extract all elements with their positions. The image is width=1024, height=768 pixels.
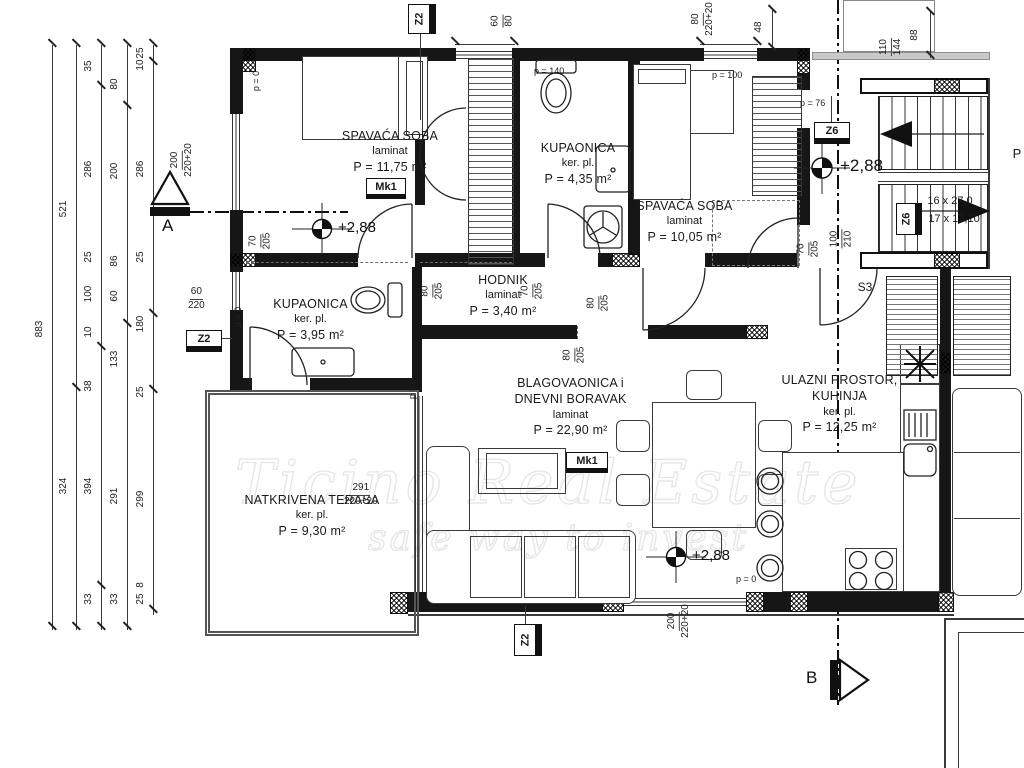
dim-door: 100210	[828, 230, 854, 249]
dim-a: 80	[419, 284, 433, 297]
wall	[256, 253, 358, 267]
sofa-line	[954, 518, 1020, 519]
chain-dim: 60	[110, 279, 120, 313]
dim-a: 100	[828, 230, 842, 249]
wall	[808, 592, 938, 612]
room-area: P = 12,25 m²	[752, 419, 927, 435]
marker-mk1: Mk1	[366, 178, 406, 195]
toilet-bowl-inner	[546, 79, 566, 107]
marker-z2-top: Z2	[408, 4, 430, 34]
level-text: +2,88	[338, 219, 376, 236]
dashed-line	[246, 262, 408, 263]
marker-text: Z6	[900, 213, 912, 226]
dim-line	[700, 44, 758, 45]
dim-line	[455, 44, 515, 45]
wall	[940, 269, 951, 593]
dim-a: 60	[190, 286, 203, 300]
chain-dim: 883	[35, 312, 45, 346]
dim-line	[772, 10, 773, 48]
toilet-bowl	[541, 73, 571, 113]
chain-dim: 86	[110, 244, 120, 278]
wall-pier	[746, 325, 768, 339]
stairs-spec-1: 16 x 27,0	[908, 194, 992, 208]
door-arc	[548, 204, 600, 258]
marker-text: Mk1	[375, 181, 396, 193]
terrace-edge	[958, 632, 959, 768]
drum-spoke	[590, 227, 603, 235]
window	[232, 114, 240, 210]
dim-b: 205	[809, 241, 822, 258]
dim-line	[930, 12, 931, 58]
room-label-living: BLAGOVAONICA i DNEVNI BORAVAK laminat P …	[478, 375, 663, 438]
stairs-spec-2: 17 x 17,10	[912, 212, 996, 226]
room-label-kitchen: ULAZNI PROSTOR, KUHINJA ker. pl. P = 12,…	[752, 372, 927, 435]
chain-dim: 394	[84, 469, 94, 503]
section-a-label: A	[162, 216, 173, 236]
dim-opening: 80205	[561, 347, 587, 364]
dim-line	[101, 45, 102, 630]
marker-text: Mk1	[576, 455, 597, 467]
room-name: ULAZNI PROSTOR,	[752, 372, 927, 388]
dim-b: 80	[503, 15, 516, 26]
d: 80	[585, 296, 599, 309]
room-label-bath1: KUPAONICA ker. pl. P = 4,35 m²	[520, 140, 636, 187]
section-b-triangle	[840, 660, 868, 700]
room-name: BLAGOVAONICA i	[478, 375, 663, 391]
chain-dim: 35	[84, 49, 94, 83]
window	[704, 51, 757, 59]
terrace-edge	[944, 618, 946, 768]
room-area: P = 9,30 m²	[222, 523, 402, 539]
p-level: p = 0	[407, 379, 417, 399]
dim-window: 291220+20	[344, 482, 378, 508]
room-area: P = 22,90 m²	[478, 422, 663, 438]
dim-b: 205	[599, 295, 612, 312]
marker-leader	[525, 606, 526, 624]
floor-plan: 883 521 324 35 286 25 100 10 38 394 33 8…	[0, 0, 1024, 768]
dim-a: 70	[247, 234, 261, 247]
bar-stool-inner	[762, 516, 779, 533]
dim-line	[52, 45, 53, 630]
marker-mk1: Mk1	[566, 452, 608, 469]
chain-dim: 324	[59, 469, 69, 503]
opening-dashed	[577, 326, 578, 339]
dim-door: 70205	[795, 241, 821, 258]
dim-door: 70205	[519, 283, 545, 300]
room-area: P = 11,75 m²	[295, 159, 485, 175]
dim-a: 110	[878, 38, 892, 56]
chain-dim: 10	[136, 48, 146, 82]
marker-bar	[430, 4, 436, 34]
room-floor: ker. pl.	[752, 405, 927, 419]
bar-stool	[757, 555, 783, 581]
p-level: p = 140	[534, 66, 564, 76]
room-area: P = 10,05 m²	[612, 229, 757, 245]
dim-window: 80220+20	[690, 2, 716, 36]
dim-window: 60220	[188, 286, 205, 312]
wall	[512, 48, 704, 61]
room-name: SPAVAĆA SOBA	[612, 198, 757, 214]
marker-bar	[566, 469, 608, 473]
p-level: p = 100	[712, 70, 742, 80]
label-p-cut: P	[1010, 146, 1024, 163]
chair	[686, 370, 722, 400]
sofa-right	[952, 388, 1022, 596]
room-floor: laminat	[478, 408, 663, 422]
section-a-bar	[150, 207, 190, 216]
p-level: p = 76	[800, 98, 825, 108]
dim-a: 70	[519, 284, 533, 297]
marker-leader	[420, 34, 421, 120]
room-floor: ker. pl.	[222, 508, 402, 522]
wall	[860, 78, 988, 94]
dim-a: 200	[666, 612, 680, 631]
marker-text: Z6	[826, 125, 839, 137]
section-b-label: B	[806, 668, 817, 688]
terrace-edge	[958, 632, 1024, 633]
chain-dim: 133	[110, 342, 120, 376]
dim-b: 220+20	[344, 496, 378, 509]
section-b-bar	[830, 660, 838, 700]
room-name: DNEVNI BORAVAK	[478, 391, 663, 407]
wardrobe	[886, 276, 938, 376]
section-a-line	[190, 211, 348, 213]
room-label-bath2: KUPAONICA ker. pl. P = 3,95 m²	[248, 296, 373, 343]
room-name: SPAVAĆA SOBA	[295, 128, 485, 144]
room-name: KUHINJA	[752, 388, 927, 404]
room-name: KUPAONICA	[520, 140, 636, 156]
dim-door: 80205	[585, 295, 611, 312]
door-arc	[820, 268, 877, 325]
wall-pier	[938, 592, 954, 612]
chain-dim: 200	[110, 154, 120, 188]
wall	[230, 48, 243, 114]
chain-dim: 299	[136, 482, 146, 516]
chain-dim: 25	[136, 582, 146, 616]
dim-b: 144	[891, 39, 904, 56]
marker-z6: Z6	[814, 122, 850, 139]
room-floor: ker. pl.	[248, 312, 373, 326]
marker-z2-left: Z2	[186, 330, 222, 347]
chain-dim: 180	[136, 307, 146, 341]
chain-dim: 286	[84, 152, 94, 186]
room-area: P = 3,40 m²	[448, 303, 558, 319]
dim-b: 205	[261, 233, 274, 250]
marker-bar	[186, 347, 222, 352]
room-floor: laminat	[612, 214, 757, 228]
door-arc	[643, 268, 705, 330]
chain-dim: 80	[110, 67, 120, 101]
washbasin-drain	[321, 360, 325, 364]
room-label-bedroom1: SPAVAĆA SOBA laminat P = 11,75 m²	[295, 128, 485, 175]
dim-a: 80	[561, 348, 575, 361]
marker-z2-bottom: Z2	[514, 624, 536, 656]
wall-pier	[790, 592, 808, 612]
toilet-tank	[388, 283, 402, 317]
bed-line	[398, 57, 399, 139]
dim-a: 200	[169, 151, 183, 170]
room-label-bedroom2: SPAVAĆA SOBA laminat P = 10,05 m²	[612, 198, 757, 245]
marker-bar	[536, 624, 542, 656]
window	[232, 272, 240, 310]
washbasin	[292, 348, 354, 376]
chain-dim: 286	[136, 152, 146, 186]
wall	[860, 252, 988, 269]
wall-pier	[746, 592, 764, 612]
chain-dim: 33	[84, 582, 94, 616]
marker-leader	[222, 338, 232, 339]
marker-text: Z2	[198, 333, 211, 345]
chain-dim: 10	[84, 315, 94, 349]
bed-pillow	[638, 69, 686, 84]
wardrobe	[953, 276, 1011, 376]
terrace-edge	[944, 618, 1024, 620]
room-floor: laminat	[295, 144, 485, 158]
wall-pier	[940, 352, 951, 374]
dim-b: 205	[575, 347, 588, 364]
dim-line	[127, 45, 128, 630]
chain-dim: 100	[84, 277, 94, 311]
marker-s3: S3	[850, 280, 880, 296]
wall-pier	[612, 253, 640, 267]
stairs-landing	[878, 181, 988, 182]
dim-single: 88	[910, 18, 920, 52]
dim-b: 220	[188, 300, 205, 313]
bar-stool-inner	[762, 560, 779, 577]
wall	[512, 253, 545, 267]
wall-edge	[988, 78, 990, 269]
p-level: p = 0	[251, 71, 261, 91]
dim-a: 291	[351, 482, 370, 496]
p-level: p = 0	[233, 307, 243, 327]
closet	[752, 76, 802, 196]
p-level: p = 0	[736, 574, 756, 584]
bed	[633, 64, 691, 200]
wall	[648, 325, 746, 339]
chain-dim: 521	[59, 192, 69, 226]
dim-line	[76, 45, 77, 630]
level-text: +2,88	[840, 156, 883, 176]
wall-pier	[934, 78, 960, 94]
chain-dim: 25	[136, 375, 146, 409]
wall-pier	[797, 48, 810, 74]
marker-bar	[366, 195, 406, 199]
marker-leader	[831, 96, 832, 122]
wall	[415, 325, 577, 339]
dim-door: 80205	[419, 283, 445, 300]
dim-a: 80	[690, 12, 704, 25]
dim-window: 6080	[490, 14, 516, 27]
chain-dim: 25	[84, 240, 94, 274]
wall-pier	[230, 253, 256, 267]
room-name: KUPAONICA	[248, 296, 373, 312]
room-area: P = 4,35 m²	[520, 171, 636, 187]
dim-door: 70205	[247, 233, 273, 250]
dim-line	[153, 45, 154, 615]
marker-bar	[814, 139, 850, 144]
dim-window: 200220+20	[169, 143, 195, 177]
wall-pier	[934, 252, 960, 269]
chain-dim: 291	[110, 479, 120, 513]
dim-window: 110144	[878, 38, 904, 56]
wall	[598, 253, 612, 267]
dim-window: 200220+20	[666, 604, 692, 638]
chain-dim: 33	[110, 582, 120, 616]
chain-dim: 38	[84, 369, 94, 403]
dim-b: 220+20	[182, 143, 195, 177]
dim-a: 60	[490, 14, 504, 27]
stove	[845, 548, 897, 590]
marker-text: Z2	[413, 13, 425, 26]
chain-dim: 25	[136, 240, 146, 274]
dim-b: 205	[433, 283, 446, 300]
level-text: +2,88	[692, 547, 730, 564]
marker-text: Z2	[519, 634, 531, 647]
stairs-landing	[878, 172, 988, 173]
dim-b: 205	[533, 283, 546, 300]
dim-a: 70	[795, 242, 809, 255]
stairs-upper-flight	[878, 96, 988, 170]
sofa-line	[954, 452, 1020, 453]
dim-b: 220+20	[703, 2, 716, 36]
room-area: P = 3,95 m²	[248, 327, 373, 343]
dim-b: 210	[842, 231, 855, 248]
wall	[764, 592, 790, 612]
dim-b: 220+20	[679, 604, 692, 638]
room-floor: ker. pl.	[520, 156, 636, 170]
